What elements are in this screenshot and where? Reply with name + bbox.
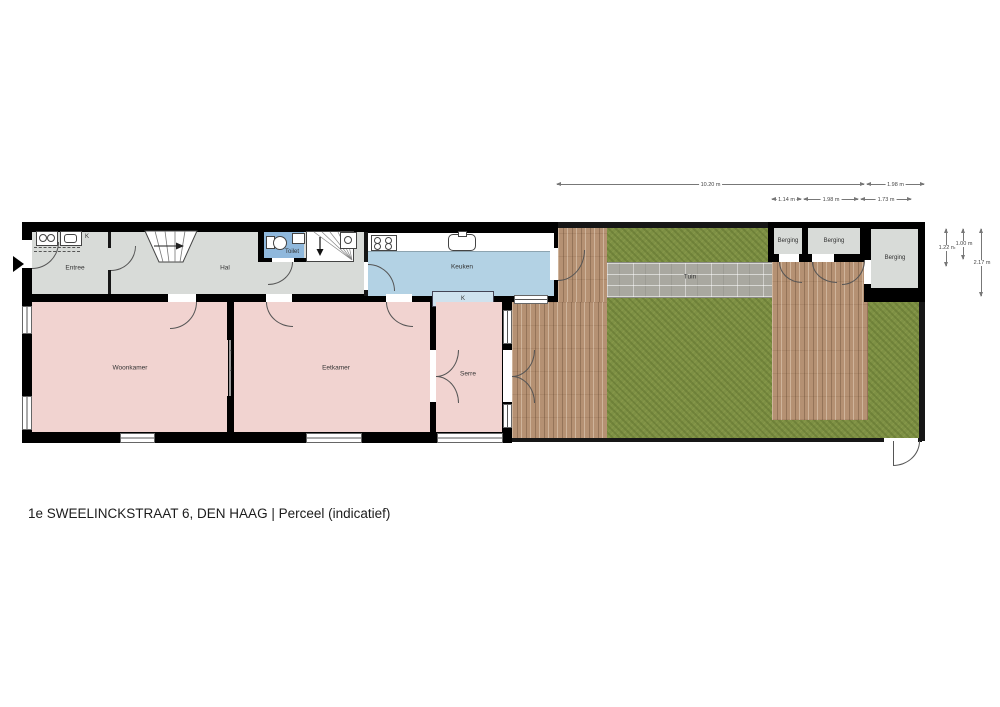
kitchen-tap-icon xyxy=(458,231,467,237)
dim-shed3-width: 1.73 m xyxy=(861,199,911,200)
woonkamer-window-bottom xyxy=(120,433,155,443)
woonkamer-label: Woonkamer xyxy=(113,365,148,372)
dim-garden-top-right: 1.98 m xyxy=(867,184,924,185)
dryer-dial-icon xyxy=(47,234,55,242)
dim-shed3-width-label: 1.73 m xyxy=(876,197,897,203)
woonkamer-window-left-1 xyxy=(22,306,32,334)
dim-shed-depth-large-label: 2.17 m xyxy=(972,260,993,266)
hal-eetkamer-door-opening xyxy=(266,294,292,302)
serre-deck-door-opening xyxy=(503,350,512,402)
toilet-bowl-icon xyxy=(273,236,287,250)
dim-shed1-width-label: 1.14 m xyxy=(776,197,797,203)
staircase-main xyxy=(142,230,200,264)
entrance-arrow-icon xyxy=(13,256,24,272)
garden-gate-swing-arc xyxy=(893,441,920,466)
berging-3-label: Berging xyxy=(885,255,906,261)
entree-closet-label: K xyxy=(85,234,89,240)
plan-caption: 1e SWEELINCKSTRAAT 6, DEN HAAG | Perceel… xyxy=(28,506,390,521)
burner-icon-4 xyxy=(385,243,392,250)
dim-shed2-width-label: 1.98 m xyxy=(821,197,842,203)
keuken-eetkamer-door-opening xyxy=(386,294,412,302)
dim-garden-width: 10.20 m xyxy=(557,184,864,185)
keuken-label: Keuken xyxy=(451,264,473,271)
dim-shed-depth-mid: 1.00 m xyxy=(963,229,964,259)
burner-icon-3 xyxy=(374,243,381,250)
washer-dial-icon xyxy=(39,234,47,242)
entree-hal-wall-b xyxy=(108,270,111,294)
berging-2-door-opening xyxy=(812,254,834,262)
floorplan-canvas: Tuin Berging Berging Berging Entree Hal … xyxy=(0,0,1000,707)
dim-shed2-width: 1.98 m xyxy=(804,199,858,200)
entree-label: Entree xyxy=(65,265,84,272)
garden-wall-top xyxy=(558,222,768,228)
dim-shed-depth-mid-label: 1.00 m xyxy=(954,241,975,247)
slide-arrow-down: ↓ xyxy=(229,365,233,373)
hal-label: Hal xyxy=(220,265,230,272)
garden-label: Tuin xyxy=(684,274,696,281)
dim-shed-depth-small: 1.22 m xyxy=(946,229,947,266)
berging-2-label: Berging xyxy=(824,238,845,244)
dim-garden-top-right-label: 1.98 m xyxy=(885,182,906,188)
deck-terrace-right xyxy=(772,258,868,420)
ensuite-wall-bottom xyxy=(227,396,234,432)
dim-shed1-width: 1.14 m xyxy=(772,199,801,200)
entree-sink-basin-icon xyxy=(64,234,77,243)
room-keuken xyxy=(368,252,554,296)
serre-window-right-bottom xyxy=(503,404,512,428)
hal-woonkamer-door-opening xyxy=(168,294,196,302)
serre-window-right-top xyxy=(503,310,512,344)
woonkamer-window-left-2 xyxy=(22,396,32,430)
serre-window-bottom xyxy=(437,433,503,443)
dim-shed-depth-large: 2.17 m xyxy=(981,229,982,296)
berging-1-label: Berging xyxy=(778,238,799,244)
deck-terrace-left-extension xyxy=(512,302,607,441)
slide-arrow-up: ↑ xyxy=(229,348,233,356)
berging-3-door-opening xyxy=(864,260,871,284)
eetkamer-window-bottom xyxy=(306,433,362,443)
dim-garden-width-label: 10.20 m xyxy=(699,182,723,188)
toilet-label: Toilet xyxy=(285,249,299,255)
garden-wall-bottom xyxy=(512,438,922,442)
ensuite-wall-top xyxy=(227,302,234,340)
serre-label: Serre xyxy=(460,371,476,378)
keuken-deck-door-opening xyxy=(550,248,558,280)
toilet-sink-icon xyxy=(292,233,305,244)
berging-1-door-opening xyxy=(779,254,799,262)
eetkamer-label: Eetkamer xyxy=(322,365,350,372)
meter-icon xyxy=(344,236,352,244)
kitchen-window-bottom xyxy=(514,295,548,304)
